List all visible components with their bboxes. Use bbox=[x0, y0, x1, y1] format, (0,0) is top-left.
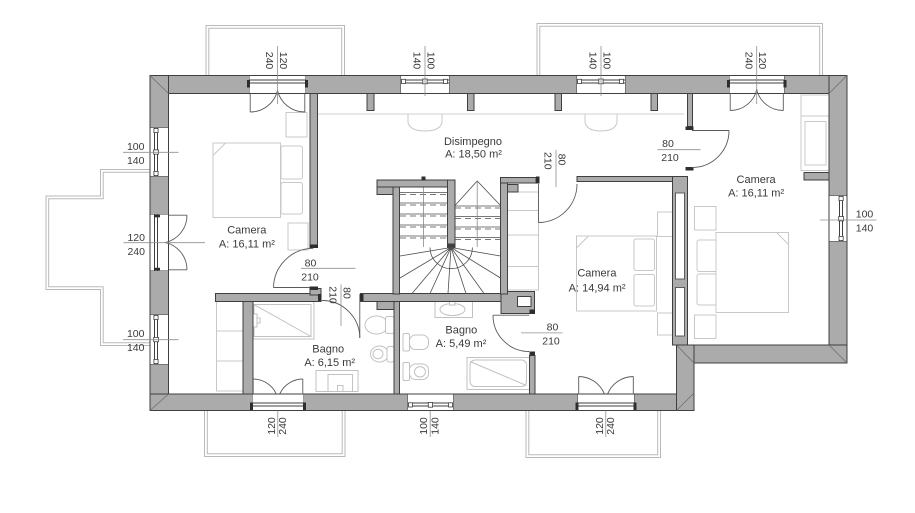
svg-text:140: 140 bbox=[587, 52, 599, 70]
svg-text:A: 5,49 m²: A: 5,49 m² bbox=[436, 338, 487, 350]
svg-text:240: 240 bbox=[127, 246, 145, 258]
svg-text:240: 240 bbox=[277, 417, 289, 435]
svg-text:Disimpegno: Disimpegno bbox=[444, 136, 502, 148]
svg-text:210: 210 bbox=[542, 335, 560, 347]
svg-text:A: 16,11 m²: A: 16,11 m² bbox=[219, 239, 275, 251]
svg-text:Bagno: Bagno bbox=[445, 324, 477, 336]
svg-text:80: 80 bbox=[340, 287, 352, 299]
svg-text:240: 240 bbox=[263, 52, 275, 70]
svg-text:140: 140 bbox=[856, 223, 874, 235]
svg-text:140: 140 bbox=[127, 155, 145, 167]
svg-text:80: 80 bbox=[556, 154, 568, 166]
svg-text:Camera: Camera bbox=[577, 268, 617, 280]
svg-text:120: 120 bbox=[277, 52, 289, 70]
svg-text:120: 120 bbox=[127, 232, 145, 244]
svg-text:A: 18,50 m²: A: 18,50 m² bbox=[445, 149, 502, 161]
svg-text:80: 80 bbox=[662, 138, 674, 150]
svg-text:140: 140 bbox=[127, 342, 145, 354]
svg-text:Camera: Camera bbox=[227, 224, 267, 236]
svg-text:80: 80 bbox=[547, 321, 559, 333]
svg-text:100: 100 bbox=[127, 141, 145, 153]
svg-text:A: 14,94 m²: A: 14,94 m² bbox=[569, 283, 626, 295]
svg-text:120: 120 bbox=[756, 52, 768, 70]
svg-text:100: 100 bbox=[856, 209, 874, 221]
svg-text:240: 240 bbox=[742, 52, 754, 70]
svg-text:240: 240 bbox=[605, 417, 617, 435]
svg-text:140: 140 bbox=[411, 52, 423, 70]
svg-text:210: 210 bbox=[542, 152, 554, 170]
svg-text:120: 120 bbox=[266, 417, 278, 435]
svg-text:210: 210 bbox=[327, 286, 339, 304]
svg-text:A: 6,15 m²: A: 6,15 m² bbox=[304, 357, 355, 369]
svg-text:100: 100 bbox=[418, 417, 430, 435]
svg-text:140: 140 bbox=[430, 417, 442, 435]
svg-text:210: 210 bbox=[661, 152, 679, 164]
svg-text:Bagno: Bagno bbox=[312, 343, 344, 355]
svg-text:80: 80 bbox=[305, 257, 317, 269]
svg-text:100: 100 bbox=[424, 52, 436, 70]
svg-text:100: 100 bbox=[127, 328, 145, 340]
svg-text:A: 16,11 m²: A: 16,11 m² bbox=[728, 188, 784, 200]
svg-text:Camera: Camera bbox=[737, 174, 777, 186]
svg-text:100: 100 bbox=[600, 52, 612, 70]
svg-text:120: 120 bbox=[594, 417, 606, 435]
svg-text:210: 210 bbox=[301, 271, 319, 283]
